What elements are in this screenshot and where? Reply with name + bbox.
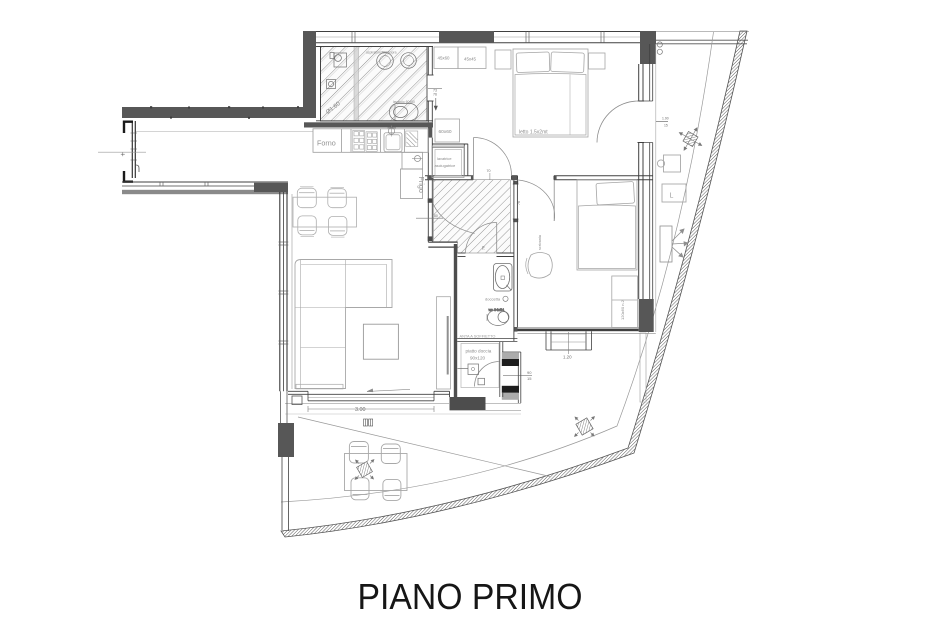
svg-text:70: 70 bbox=[487, 169, 491, 173]
svg-text:90x120: 90x120 bbox=[470, 356, 486, 361]
svg-text:Forno: Forno bbox=[317, 139, 336, 148]
svg-text:45x60: 45x60 bbox=[438, 56, 451, 61]
svg-text:15: 15 bbox=[664, 124, 668, 128]
svg-text:1.90: 1.90 bbox=[662, 117, 669, 121]
svg-text:15: 15 bbox=[527, 376, 532, 381]
svg-text:lavatoio 60x50: lavatoio 60x50 bbox=[393, 100, 415, 104]
svg-text:piatto doccia: piatto doccia bbox=[466, 349, 492, 354]
svg-text:asciugatrice: asciugatrice bbox=[435, 163, 456, 168]
svg-text:Frigo: Frigo bbox=[417, 177, 426, 193]
svg-text:1.20: 1.20 bbox=[563, 355, 572, 360]
svg-text:45x45: 45x45 bbox=[464, 57, 477, 62]
svg-text:76: 76 bbox=[433, 93, 437, 97]
svg-text:lavatrice: lavatrice bbox=[437, 156, 452, 161]
svg-text:L: L bbox=[670, 193, 674, 200]
svg-text:80: 80 bbox=[434, 214, 438, 218]
svg-text:scrivania: scrivania bbox=[538, 234, 542, 250]
svg-text:doccetta: doccetta bbox=[485, 297, 501, 302]
svg-text:90: 90 bbox=[527, 370, 532, 375]
svg-text:PIANO PRIMO: PIANO PRIMO bbox=[358, 576, 583, 617]
svg-text:76: 76 bbox=[517, 201, 521, 205]
svg-text:60x60: 60x60 bbox=[439, 129, 452, 135]
svg-text:3.00: 3.00 bbox=[355, 407, 366, 413]
svg-text:120x60 n.2: 120x60 n.2 bbox=[620, 299, 625, 320]
svg-text:aspiratore lav. sopra: aspiratore lav. sopra bbox=[366, 51, 397, 55]
svg-text:letto 1.5x2mt: letto 1.5x2mt bbox=[519, 130, 548, 136]
svg-text:ANTA A SOFFIETTO: ANTA A SOFFIETTO bbox=[460, 333, 496, 338]
svg-text:70: 70 bbox=[482, 246, 486, 250]
